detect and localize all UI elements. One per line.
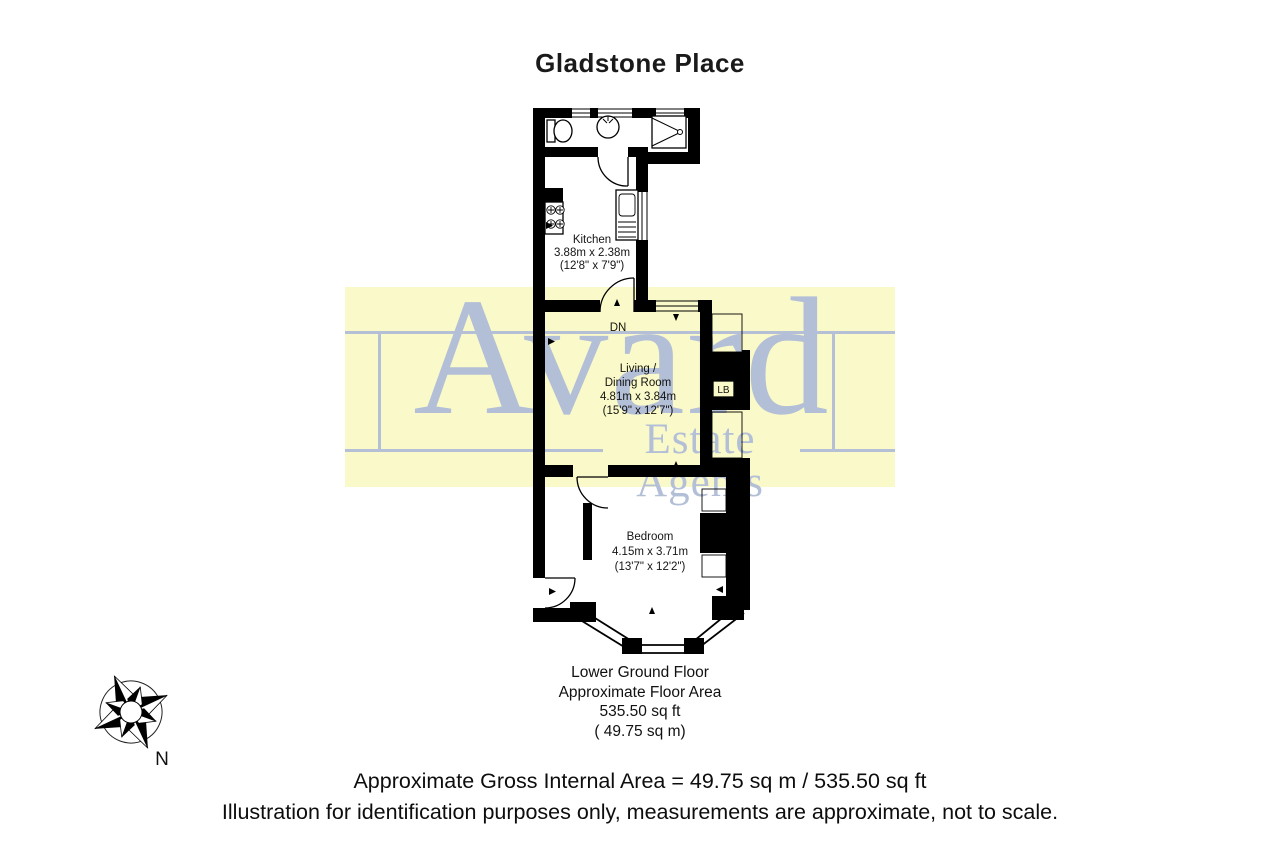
bathroom-window-1 (572, 108, 590, 118)
bedroom-dims-m: 4.15m x 3.71m (612, 546, 688, 558)
stove (545, 202, 564, 234)
kitchen-fixtures (545, 188, 638, 240)
watermark-band: Avard Estate Agents (345, 287, 895, 487)
floorplan-page: { "page": { "title": "Gladstone Place" }… (0, 0, 1280, 853)
bathroom-door (598, 157, 628, 186)
gross-area-text: Approximate Gross Internal Area = 49.75 … (0, 769, 1280, 794)
watermark-tagline: Estate Agents (585, 418, 815, 504)
bathroom-fixtures (547, 116, 686, 148)
floor-summary: Lower Ground Floor Approximate Floor Are… (0, 663, 1280, 741)
bedroom-alcove-2 (702, 555, 726, 577)
floor-summary-line: Lower Ground Floor (0, 663, 1280, 683)
bedroom-dims-ft: (13'7" x 12'2") (615, 561, 686, 573)
watermark-frame-left (378, 331, 381, 452)
disclaimer-text: Illustration for identification purposes… (0, 800, 1280, 825)
floor-summary-line: ( 49.75 sq m) (0, 722, 1280, 742)
shower (652, 116, 686, 148)
kitchen-sink (616, 190, 638, 240)
bedroom-label: Bedroom (627, 531, 674, 543)
kitchen-dims-m: 3.88m x 2.38m (554, 247, 630, 259)
bay-window (570, 596, 744, 654)
watermark-brand: Avard (387, 273, 857, 441)
floor-summary-line: 535.50 sq ft (0, 702, 1280, 722)
compass-north-label: N (155, 749, 169, 770)
toilet (547, 120, 572, 142)
basin (597, 116, 619, 138)
floor-summary-line: Approximate Floor Area (0, 683, 1280, 703)
kitchen-label: Kitchen (573, 234, 611, 246)
